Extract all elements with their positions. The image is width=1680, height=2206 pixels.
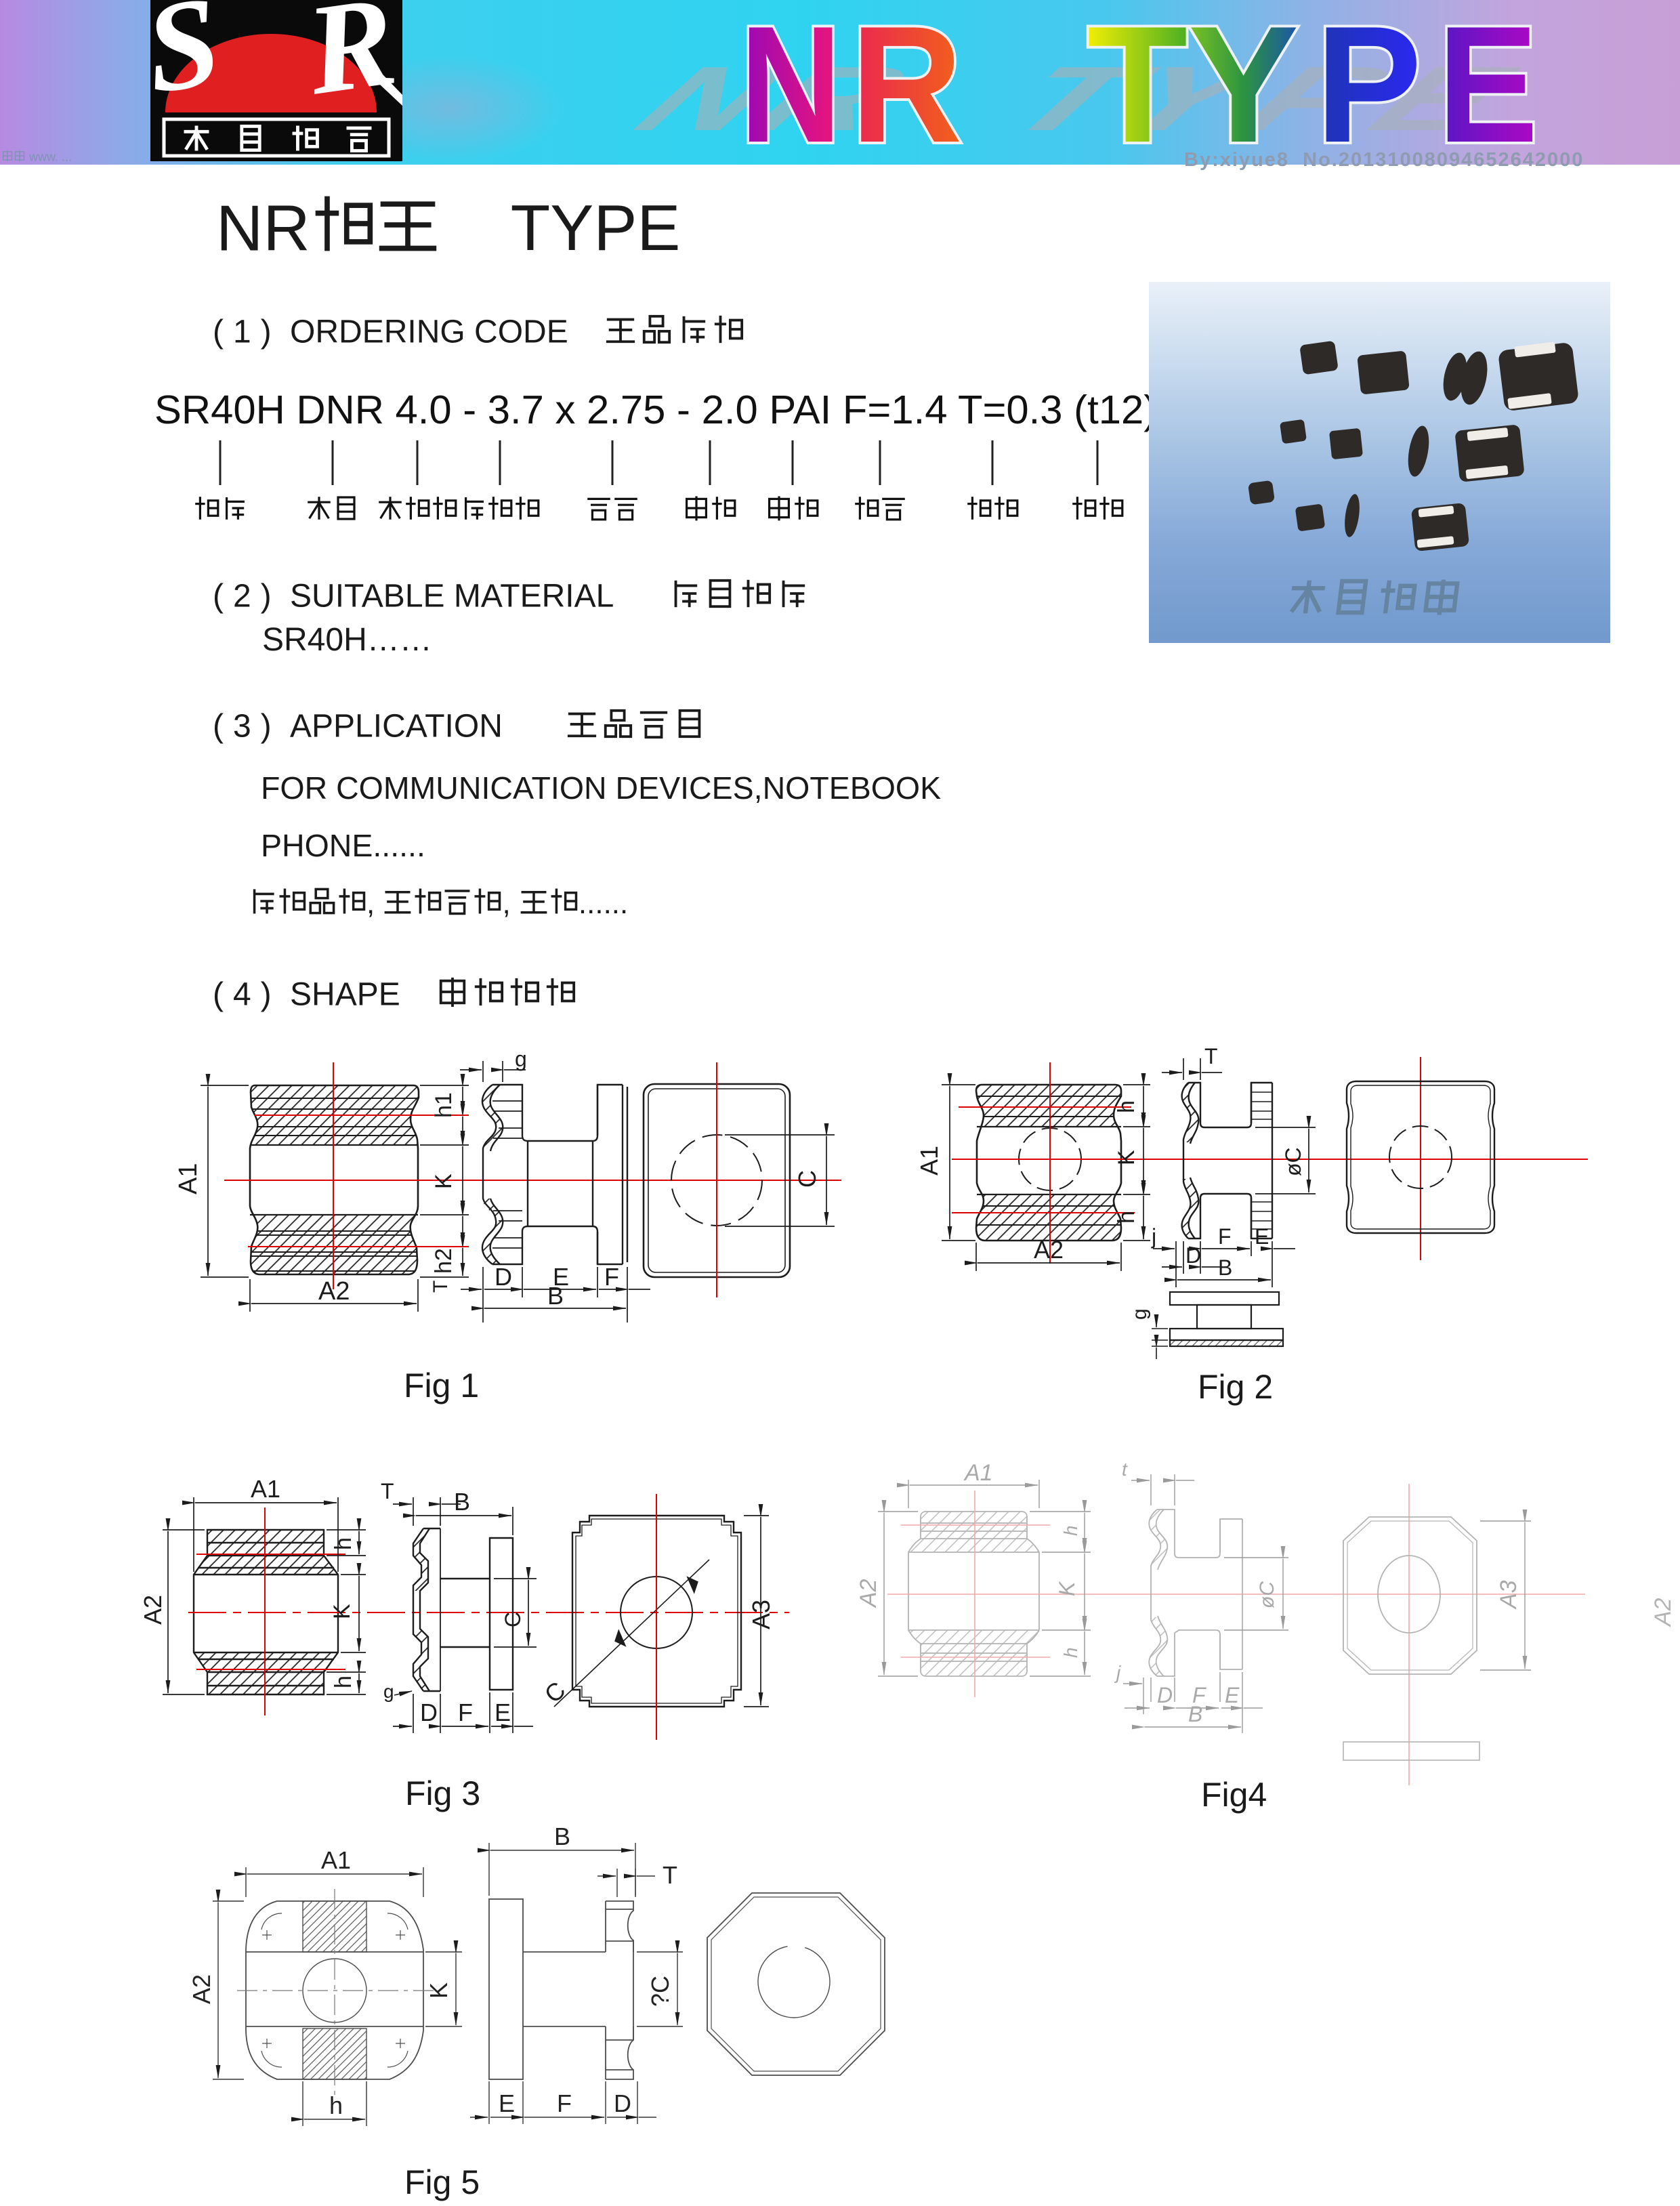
svg-text:A1: A1	[251, 1475, 280, 1503]
svg-text:C: C	[539, 1676, 571, 1709]
svg-text:S: S	[138, 0, 228, 121]
svg-text:F: F	[604, 1263, 619, 1291]
svg-text:t: t	[1122, 1459, 1128, 1480]
svg-text:R: R	[851, 0, 963, 178]
svg-text:Fig 5: Fig 5	[404, 2163, 480, 2201]
svg-text:E: E	[1255, 1224, 1269, 1249]
svg-text:h2: h2	[431, 1248, 457, 1274]
svg-text:K: K	[431, 1173, 457, 1189]
svg-text:h: h	[1060, 1525, 1081, 1536]
svg-text:h: h	[331, 1537, 356, 1550]
svg-text:g: g	[1129, 1308, 1151, 1320]
svg-text:K: K	[329, 1604, 355, 1619]
svg-text:A2: A2	[188, 1974, 215, 2004]
svg-text:D: D	[495, 1263, 512, 1291]
svg-text:D: D	[614, 2089, 631, 2117]
svg-text:Fig 2: Fig 2	[1198, 1368, 1273, 1406]
svg-text:K: K	[425, 1982, 453, 1999]
svg-text:øC: øC	[1256, 1581, 1278, 1608]
svg-text:A1: A1	[915, 1146, 943, 1175]
svg-text:j: j	[1151, 1224, 1156, 1249]
svg-text:A2: A2	[139, 1595, 167, 1625]
svg-text:Fig 3: Fig 3	[405, 1774, 480, 1812]
svg-text:A2: A2	[1650, 1598, 1676, 1627]
svg-text:h: h	[1114, 1100, 1139, 1113]
svg-text:A2: A2	[856, 1579, 881, 1608]
svg-text:C: C	[501, 1612, 525, 1627]
svg-text:h: h	[329, 2091, 343, 2119]
svg-text:h: h	[1060, 1647, 1081, 1658]
svg-text:D: D	[1157, 1683, 1173, 1707]
svg-text:g: g	[383, 1681, 394, 1702]
svg-text:A2: A2	[318, 1277, 350, 1306]
svg-text:h: h	[331, 1676, 356, 1688]
svg-text:T: T	[381, 1479, 394, 1503]
svg-text:B: B	[1218, 1255, 1232, 1280]
svg-text:B: B	[554, 1823, 570, 1850]
svg-text:F: F	[557, 2089, 572, 2117]
svg-text:E: E	[1225, 1683, 1240, 1707]
svg-text:B: B	[454, 1488, 470, 1516]
svg-text:A1: A1	[174, 1163, 203, 1194]
svg-text:Fig 1: Fig 1	[404, 1367, 479, 1404]
svg-text:E: E	[499, 2089, 515, 2117]
svg-text:E: E	[495, 1699, 511, 1726]
svg-text:g: g	[515, 1047, 527, 1071]
svg-text:øC: øC	[1281, 1147, 1305, 1176]
svg-text:D: D	[420, 1699, 438, 1726]
svg-text:A1: A1	[321, 1846, 351, 1874]
svg-text:j: j	[1114, 1662, 1121, 1683]
svg-text:K: K	[1055, 1581, 1079, 1596]
svg-text:D: D	[1185, 1243, 1201, 1268]
svg-text:T: T	[1087, 0, 1188, 177]
svg-text:F: F	[1218, 1224, 1232, 1249]
svg-text:A3: A3	[1496, 1580, 1521, 1610]
svg-text:B: B	[1188, 1702, 1202, 1726]
svg-text:Fig4: Fig4	[1201, 1776, 1267, 1814]
svg-text:A3: A3	[747, 1600, 775, 1629]
svg-text:C: C	[793, 1170, 821, 1188]
svg-text:A2: A2	[1034, 1236, 1064, 1264]
svg-text:T: T	[429, 1281, 452, 1293]
svg-text:h1: h1	[431, 1092, 457, 1118]
svg-text:A1: A1	[963, 1460, 993, 1486]
svg-text:K: K	[1114, 1150, 1139, 1165]
svg-text:F: F	[458, 1699, 473, 1726]
svg-text:T: T	[1204, 1044, 1218, 1068]
svg-text:T: T	[663, 1861, 677, 1889]
svg-text:N: N	[740, 0, 841, 178]
svg-text:?C: ?C	[646, 1976, 674, 2007]
svg-text:B: B	[547, 1282, 564, 1310]
svg-text:h: h	[1114, 1211, 1139, 1224]
